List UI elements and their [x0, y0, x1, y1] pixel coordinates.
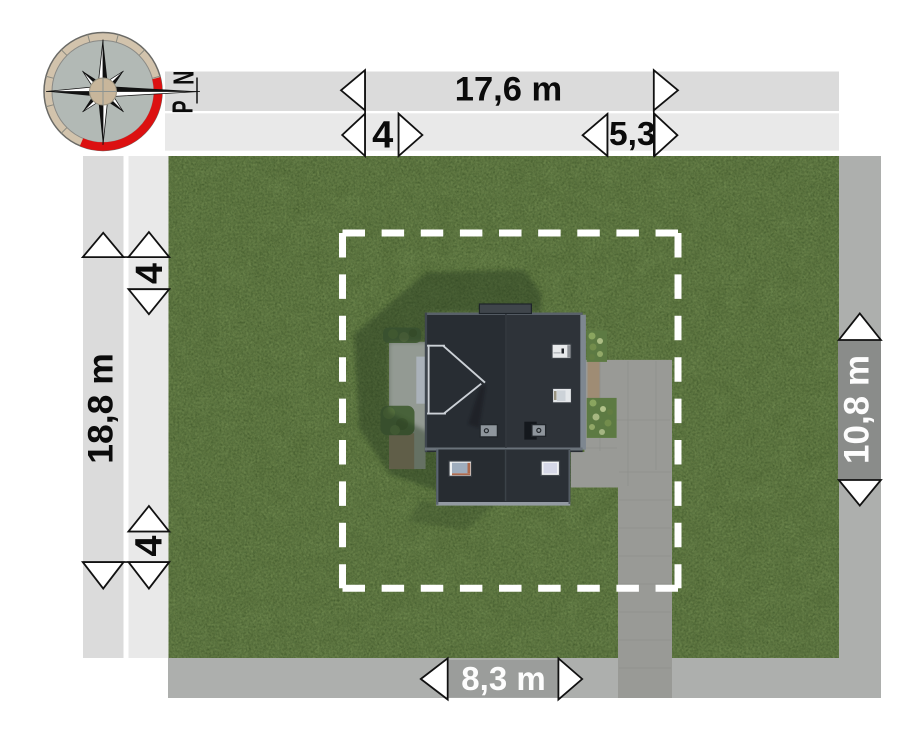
svg-text:4: 4	[129, 263, 171, 284]
svg-text:4: 4	[129, 535, 171, 556]
svg-text:10,8 m: 10,8 m	[838, 355, 877, 464]
svg-text:18,8 m: 18,8 m	[81, 353, 121, 464]
svg-text:N: N	[169, 71, 201, 85]
svg-text:17,6 m: 17,6 m	[455, 71, 562, 109]
svg-text:5,3: 5,3	[609, 116, 656, 153]
svg-text:8,3 m: 8,3 m	[461, 660, 545, 697]
svg-text:P: P	[168, 100, 200, 113]
svg-text:4: 4	[372, 115, 393, 157]
